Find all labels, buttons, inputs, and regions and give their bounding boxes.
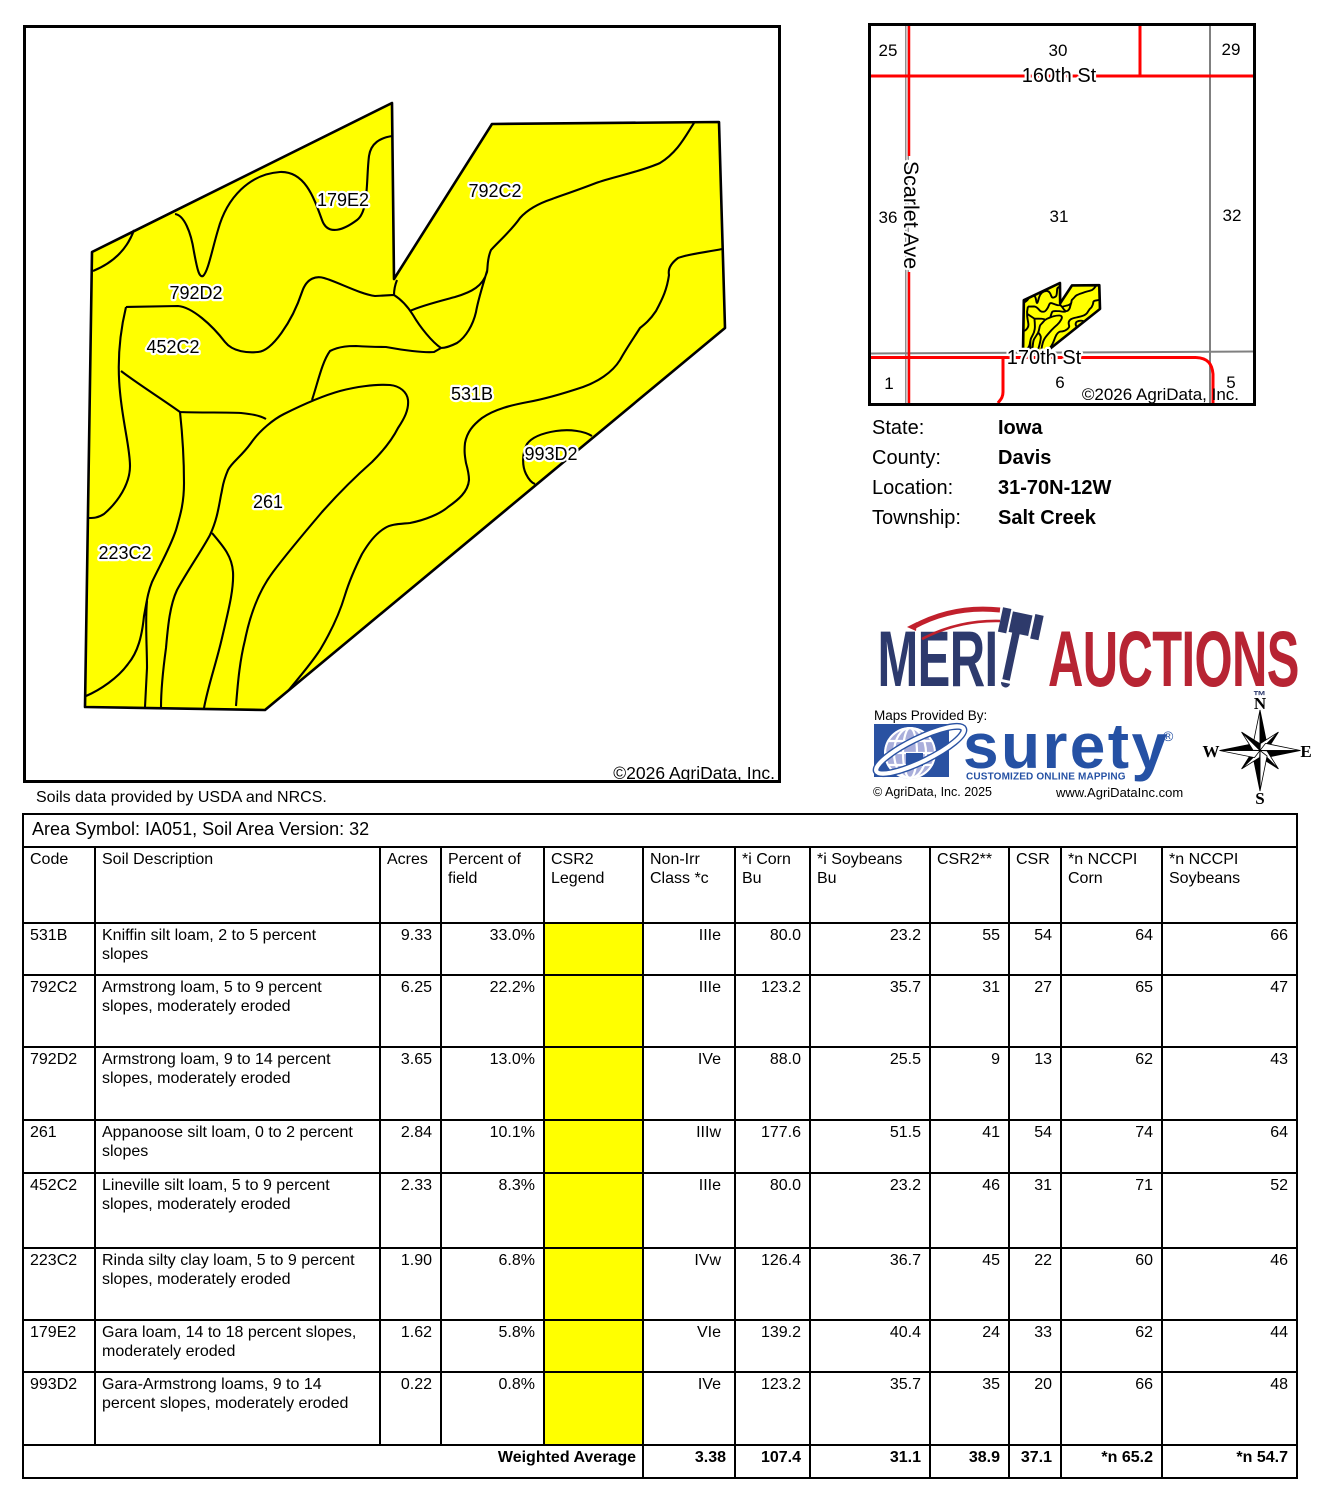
svg-text:CUSTOMIZED ONLINE MAPPING: CUSTOMIZED ONLINE MAPPING (966, 772, 1126, 783)
svg-text:1: 1 (884, 374, 893, 393)
svg-text:993D2: 993D2 (524, 444, 577, 464)
svg-text:223C2: 223C2 (98, 543, 151, 563)
svg-text:6: 6 (1055, 373, 1064, 392)
svg-text:531B: 531B (451, 384, 493, 404)
svg-text:MERI: MERI (878, 615, 998, 700)
svg-text:S: S (1255, 789, 1264, 808)
svg-text:Scarlet Ave: Scarlet Ave (899, 161, 923, 269)
svg-text:261: 261 (253, 492, 283, 512)
svg-text:N: N (1254, 694, 1267, 713)
svg-text:179E2: 179E2 (317, 190, 369, 210)
svg-text:W: W (1203, 742, 1220, 761)
svg-text:36: 36 (879, 208, 898, 227)
svg-text:452C2: 452C2 (146, 337, 199, 357)
svg-text:E: E (1300, 742, 1311, 761)
svg-text:©2026 AgriData, Inc.: ©2026 AgriData, Inc. (1082, 385, 1239, 403)
svg-text:160th St: 160th St (1022, 65, 1097, 87)
svg-text:792C2: 792C2 (468, 181, 521, 201)
svg-text:29: 29 (1222, 40, 1241, 59)
svg-text:©2026 AgriData, Inc.: ©2026 AgriData, Inc. (613, 763, 775, 780)
svg-text:31: 31 (1050, 207, 1069, 226)
svg-text:30: 30 (1049, 41, 1068, 60)
svg-text:792D2: 792D2 (169, 283, 222, 303)
svg-text:25: 25 (879, 41, 898, 60)
svg-text:®: ® (1163, 728, 1174, 744)
svg-text:170th St: 170th St (1007, 347, 1082, 369)
svg-text:32: 32 (1223, 206, 1242, 225)
